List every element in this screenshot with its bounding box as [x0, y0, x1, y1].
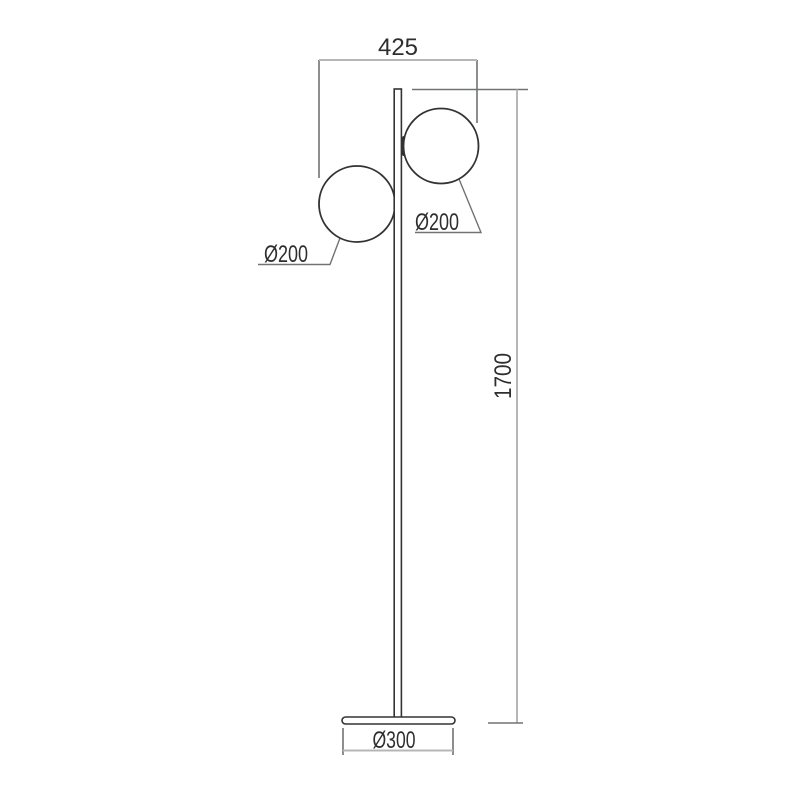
diameter-label-globe-right: Ø200 [415, 209, 459, 236]
dimension-1700-group: 1700 [412, 90, 528, 724]
globe-right [404, 109, 479, 184]
diameter-label-globe-left: Ø200 [264, 241, 308, 268]
lamp-dimension-diagram: 425 1700 Ø300 Ø200 Ø200 [0, 0, 800, 800]
leader-globe-left-group: Ø200 [258, 238, 340, 268]
dimension-label-width-425: 425 [378, 34, 418, 61]
globe-left [319, 166, 395, 242]
leader-globe-right-group: Ø200 [415, 179, 481, 236]
dimension-300-group: Ø300 [343, 727, 453, 755]
technical-drawing: 425 1700 Ø300 Ø200 Ø200 [0, 0, 800, 800]
dimension-label-height-1700: 1700 [490, 353, 517, 399]
dimension-label-base-300: Ø300 [373, 727, 416, 754]
lamp-base-plate [342, 717, 455, 724]
lamp-body-group [319, 89, 479, 724]
lamp-pole [394, 89, 401, 718]
